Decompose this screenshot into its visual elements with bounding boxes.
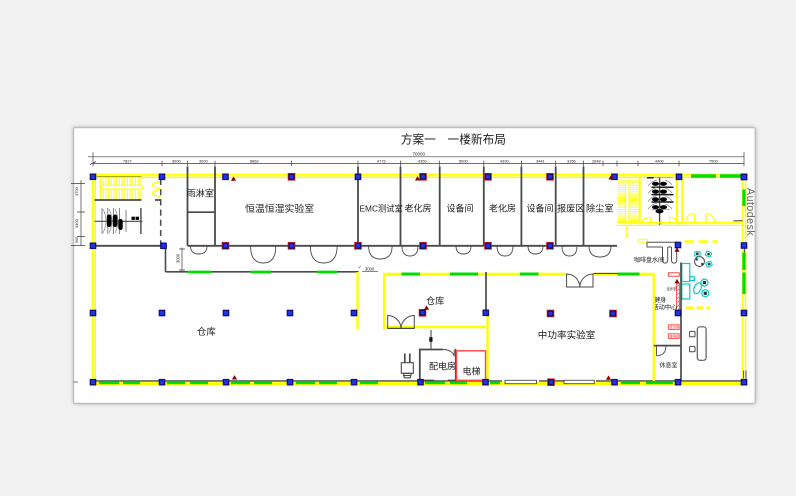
svg-text:饮水机: 饮水机 xyxy=(670,325,680,330)
svg-text:EMC测试室: EMC测试室 xyxy=(360,203,403,213)
svg-text:4775: 4775 xyxy=(377,158,386,163)
svg-text:7827: 7827 xyxy=(123,158,132,163)
svg-text:8862: 8862 xyxy=(250,158,259,163)
svg-text:休息室: 休息室 xyxy=(660,362,678,370)
svg-text:老化房: 老化房 xyxy=(405,203,432,214)
svg-text:走步机: 走步机 xyxy=(667,286,678,291)
svg-text:2848: 2848 xyxy=(592,158,601,163)
svg-text:设备间: 设备间 xyxy=(527,203,554,214)
svg-text:900: 900 xyxy=(75,237,79,243)
svg-text:5000: 5000 xyxy=(459,158,468,163)
svg-text:70000: 70000 xyxy=(413,152,426,157)
svg-text:咖啡盘水间: 咖啡盘水间 xyxy=(634,256,664,264)
svg-text:3000: 3000 xyxy=(199,158,208,163)
svg-text:3156: 3156 xyxy=(567,158,576,163)
svg-text:活动中心: 活动中心 xyxy=(653,303,678,311)
svg-text:7500: 7500 xyxy=(709,158,718,163)
svg-text:4390: 4390 xyxy=(500,158,509,163)
svg-text:3000: 3000 xyxy=(172,158,181,163)
svg-text:仓库: 仓库 xyxy=(197,326,216,337)
svg-text:3000: 3000 xyxy=(365,266,375,271)
svg-text:设备间: 设备间 xyxy=(447,203,474,214)
svg-text:3000: 3000 xyxy=(176,253,181,263)
svg-text:雨淋室: 雨淋室 xyxy=(187,188,215,199)
svg-text:恒温恒湿实验室: 恒温恒湿实验室 xyxy=(245,202,314,215)
svg-text:4350: 4350 xyxy=(418,158,427,163)
svg-text:健身: 健身 xyxy=(654,296,666,304)
svg-text:老化房: 老化房 xyxy=(489,203,516,214)
svg-text:方案一 一楼新布局: 方案一 一楼新布局 xyxy=(401,132,506,146)
svg-text:除尘室: 除尘室 xyxy=(586,202,614,213)
svg-text:电梯: 电梯 xyxy=(463,366,481,377)
svg-text:报废区: 报废区 xyxy=(557,203,585,214)
svg-text:4400: 4400 xyxy=(655,158,664,163)
svg-text:配电房: 配电房 xyxy=(429,361,456,372)
svg-text:咖啡机: 咖啡机 xyxy=(670,334,680,339)
svg-text:中功率实验室: 中功率实验室 xyxy=(538,329,596,341)
svg-text:仓库: 仓库 xyxy=(426,295,444,306)
svg-text:3441: 3441 xyxy=(536,158,545,163)
svg-text:3700: 3700 xyxy=(74,186,79,196)
svg-text:3400: 3400 xyxy=(74,218,79,228)
